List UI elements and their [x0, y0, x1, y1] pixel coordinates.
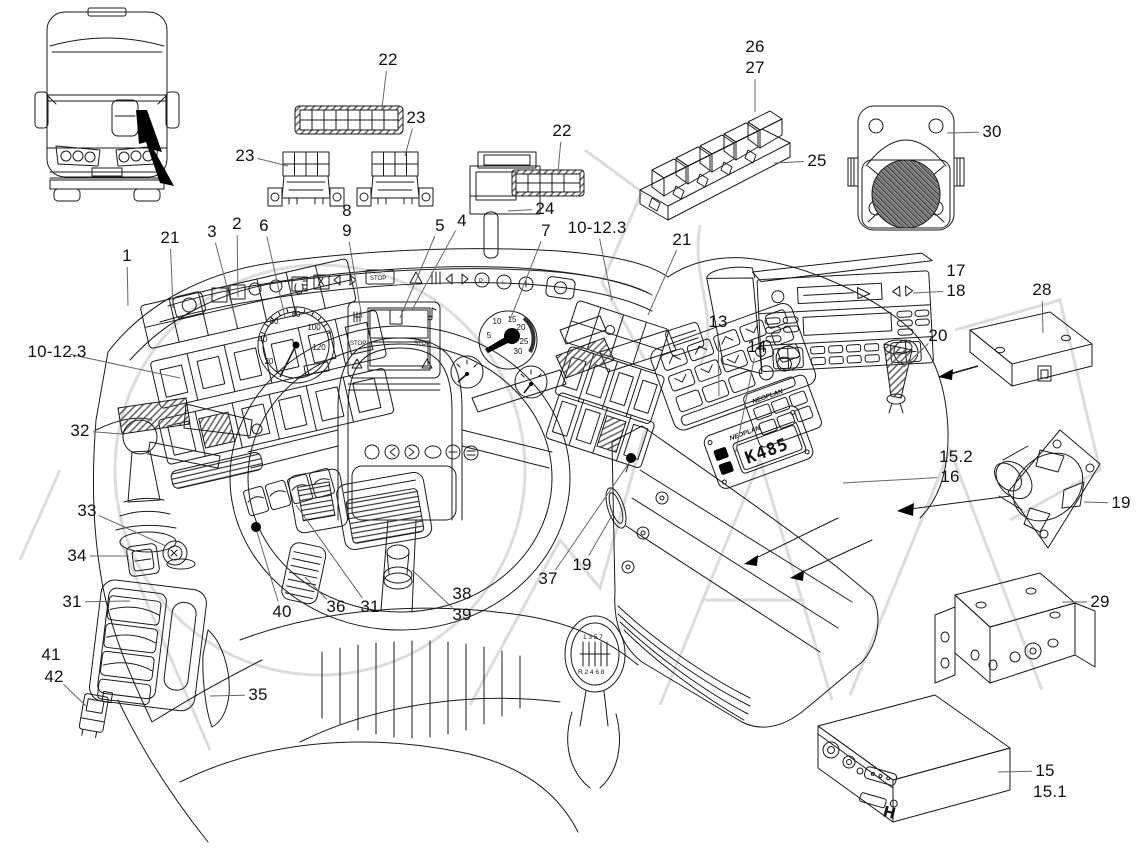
- gauge-numeral: 20: [517, 323, 526, 332]
- bracket-41-42: [78, 688, 113, 739]
- center-vent-small: [288, 468, 349, 534]
- switch-module-23b: [357, 152, 433, 206]
- side-console: [602, 426, 878, 727]
- trim-35: [203, 630, 229, 727]
- speaker-30: [848, 106, 964, 230]
- gauge-numeral: 25: [520, 337, 529, 346]
- vent-grille-22b: [512, 170, 584, 196]
- microphone-20: [884, 340, 912, 413]
- control-unit-29: [935, 573, 1095, 683]
- screw-40: [251, 522, 261, 532]
- relay-carrier-25: [640, 111, 790, 220]
- svg-text:!: !: [502, 281, 504, 287]
- steering-column-buttons: [365, 445, 478, 460]
- ignition-knob-38-39: [384, 545, 412, 589]
- lcd-stop-left: STOP: [350, 341, 366, 347]
- vent-grille-22a: [295, 106, 403, 134]
- tuner-logo-h: H: [881, 802, 898, 823]
- lighter-33: [163, 541, 195, 569]
- fuel-gauge: [451, 356, 483, 388]
- speedometer: 20406080100120: [258, 307, 334, 383]
- gauge-numeral: 10: [493, 317, 502, 326]
- radio-tuner-15: H: [818, 695, 1010, 823]
- arrow-from-speaker19: [897, 496, 1010, 516]
- gauge-numeral: 100: [307, 323, 321, 332]
- floor-hatch-lines: [322, 641, 520, 738]
- display-value: K485: [743, 434, 792, 468]
- interface-module-28: [970, 312, 1092, 386]
- shift-pattern-bottom: R 2 4 6 8: [578, 669, 605, 676]
- gauge-numeral: 20: [265, 357, 274, 366]
- mounting-frame-24: [470, 152, 540, 258]
- pedal-36: [280, 541, 327, 605]
- svg-text:P: P: [479, 279, 483, 285]
- telltale-stop-text: STOP: [370, 276, 386, 282]
- gauge-numeral: 60: [270, 317, 279, 326]
- floor-gearshift: 1 3 5 7 R 2 4 6 8: [565, 616, 625, 788]
- parts-diagram-page: H STOP P !: [0, 0, 1146, 851]
- gauge-numeral: 30: [514, 347, 523, 356]
- arrow-to-microphone: [938, 366, 978, 380]
- bus-front-view: [35, 8, 179, 201]
- diagram-drawing: H STOP P !: [0, 0, 1146, 851]
- gauge-numeral: 5: [487, 331, 492, 340]
- center-vent-large: [335, 471, 433, 551]
- gauge-numeral: 80: [292, 310, 301, 319]
- climate-panel-13: [648, 301, 818, 433]
- gauge-numeral: 40: [259, 335, 268, 344]
- shift-pattern-top: 1 3 5 7: [583, 634, 603, 641]
- watermark: [20, 150, 1100, 750]
- sensor-37: [626, 453, 636, 463]
- switch-module-23a: [268, 152, 344, 206]
- display-unit-k485: NEOPLAN K485: [702, 404, 815, 491]
- speaker-19: [989, 430, 1100, 548]
